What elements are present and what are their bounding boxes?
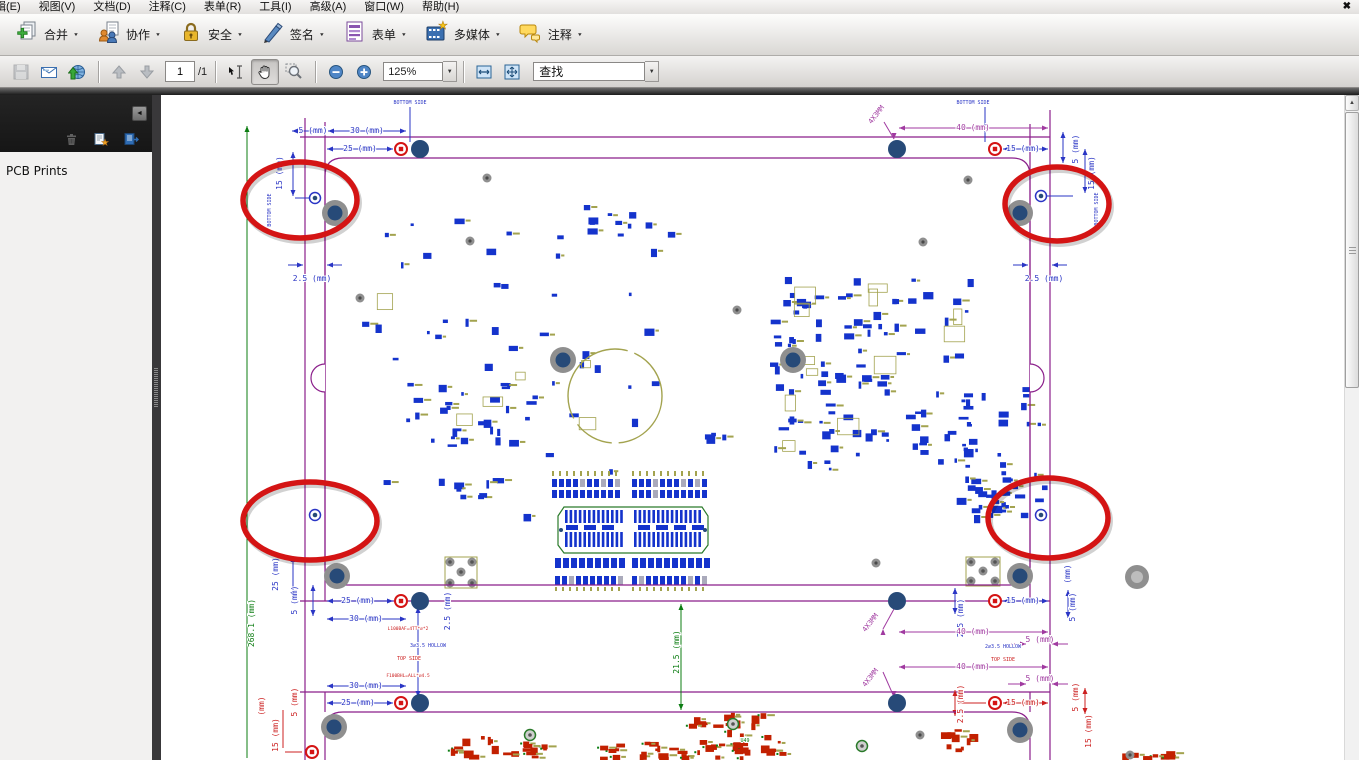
- dimension-label: 5 (mm): [1026, 674, 1055, 683]
- dimension-label: 2⌀3.5 HOLLOW: [985, 644, 1022, 650]
- dimension-label: 40 (mm): [956, 627, 990, 636]
- toolbar-shadow: [0, 88, 1359, 95]
- collaborate-button[interactable]: 协作▼: [90, 17, 168, 52]
- dimension-label: 5 (mm): [290, 688, 299, 717]
- dimension-label: 3⌀3.5 HOLLOW: [410, 643, 447, 649]
- dimension-label: 15 (mm): [271, 718, 280, 752]
- collapse-arrow-icon: ◄: [136, 110, 143, 117]
- dimension-label: 40 (mm): [956, 123, 990, 132]
- up-arrow-icon: [111, 64, 127, 80]
- dimension-label: 25 (mm): [341, 698, 375, 707]
- comment-icon: [519, 20, 543, 49]
- save-button[interactable]: [8, 60, 34, 84]
- find-dropdown-button[interactable]: ▼: [645, 61, 659, 82]
- combine-button[interactable]: 合并▼: [8, 17, 86, 52]
- save-icon: [12, 63, 30, 81]
- dimension-label: 2.5 (mm): [293, 274, 332, 283]
- down-arrow-icon: [139, 64, 155, 80]
- dimension-label: 4X3MM: [867, 104, 886, 126]
- zoom-level-value[interactable]: 125%: [383, 62, 443, 81]
- comment-label: 注释: [548, 26, 572, 43]
- scroll-up-button[interactable]: ▲: [1345, 95, 1359, 111]
- svg-text:★: ★: [101, 138, 109, 148]
- sidebar-splitter[interactable]: [152, 95, 161, 760]
- separator: [315, 61, 317, 83]
- dimension-label: 5 (mm): [1068, 593, 1077, 622]
- dimension-label: 2.5 (mm): [1025, 274, 1064, 283]
- dimension-label: 5 (mm): [299, 126, 328, 135]
- dimension-label: 15 (mm): [1006, 144, 1040, 153]
- dropdown-caret-icon: ▼: [577, 32, 583, 37]
- new-page-star-icon: ★: [93, 132, 109, 147]
- menu-item-4[interactable]: 表单(R): [195, 1, 250, 14]
- menu-items: 辑(E)视图(V)文档(D)注释(C)表单(R)工具(I)高级(A)窗口(W)帮…: [0, 1, 468, 14]
- page-number-input[interactable]: [165, 61, 195, 82]
- separator: [98, 61, 100, 83]
- sidebar-collapse-button[interactable]: ◄: [132, 106, 147, 121]
- combine-label: 合并: [44, 26, 68, 43]
- pcb-drawing: BOTTOM SIDE5 (mm)30 (mm)25 (mm)15 (mm)BO…: [161, 95, 1344, 760]
- mounting-hole: [1007, 563, 1033, 589]
- secure-button[interactable]: 安全▼: [172, 17, 250, 52]
- dimension-label: U49: [740, 738, 749, 744]
- close-icon[interactable]: ✖: [1343, 0, 1351, 13]
- dimension-label: 2.5 (mm): [443, 592, 452, 631]
- scroll-thumb[interactable]: [1345, 112, 1359, 388]
- menu-item-7[interactable]: 窗口(W): [355, 1, 413, 14]
- splitter-grip-icon: [154, 367, 158, 407]
- navigation-sidebar: ◄ ★: [0, 95, 152, 760]
- menu-item-2[interactable]: 文档(D): [84, 1, 139, 14]
- secure-label: 安全: [208, 26, 232, 43]
- previous-page-button[interactable]: [106, 60, 132, 84]
- export-page-icon: [123, 132, 139, 147]
- mounting-hole: [324, 563, 350, 589]
- fit-page-button[interactable]: [499, 60, 525, 84]
- sign-icon: [261, 20, 285, 49]
- find-input[interactable]: 查找: [533, 62, 645, 81]
- forms-button[interactable]: 表单▼: [336, 17, 414, 52]
- dropdown-caret-icon: ▼: [319, 32, 325, 37]
- collaborate-label: 协作: [126, 26, 150, 43]
- email-button[interactable]: [36, 60, 62, 84]
- collaborate-icon: [97, 20, 121, 49]
- menu-item-8[interactable]: 帮助(H): [413, 1, 468, 14]
- dimension-label: BOTTOM SIDE: [1094, 192, 1100, 225]
- sidebar-panel: PCB Prints: [0, 152, 152, 760]
- dimension-label: 30 (mm): [350, 126, 384, 135]
- separator: [215, 61, 217, 83]
- combine-icon: [15, 20, 39, 49]
- dimension-label: BOTTOM SIDE: [956, 100, 989, 106]
- dimension-label: TOP SIDE: [991, 657, 1015, 663]
- dimension-label: 2.5 (mm): [956, 685, 965, 724]
- hand-tool-button[interactable]: [251, 59, 279, 85]
- zoom-in-button[interactable]: [351, 60, 377, 84]
- fit-width-icon: [475, 63, 493, 81]
- document-pane[interactable]: BOTTOM SIDE5 (mm)30 (mm)25 (mm)15 (mm)BO…: [161, 95, 1344, 760]
- secure-icon: [179, 20, 203, 49]
- thumb-grip-icon: [1349, 247, 1356, 254]
- fit-width-button[interactable]: [471, 60, 497, 84]
- mounting-hole: [321, 714, 347, 740]
- dimension-label: 25 (mm): [271, 557, 280, 591]
- dimension-label: (mm): [1063, 564, 1072, 583]
- menu-item-1[interactable]: 视图(V): [30, 1, 85, 14]
- menu-bar: 辑(E)视图(V)文档(D)注释(C)表单(R)工具(I)高级(A)窗口(W)帮…: [0, 0, 1359, 15]
- dimension-label: 40 (mm): [956, 662, 990, 671]
- zoom-dropdown-button[interactable]: ▼: [443, 61, 457, 82]
- menu-item-0[interactable]: 辑(E): [0, 1, 30, 14]
- toolbar-main: 合并▼协作▼安全▼签名▼表单▼★多媒体▼注释▼: [0, 14, 1359, 56]
- multimedia-icon: ★: [425, 20, 449, 49]
- dimension-label: 15 (mm): [1006, 698, 1040, 707]
- multimedia-button[interactable]: ★多媒体▼: [418, 17, 508, 52]
- mounting-hole: [780, 347, 806, 373]
- trash-icon: [64, 132, 79, 147]
- comment-button[interactable]: 注释▼: [512, 17, 590, 52]
- dimension-label: 15 (mm): [1084, 714, 1093, 748]
- svg-text:★: ★: [438, 20, 448, 32]
- vertical-scrollbar[interactable]: ▲: [1344, 95, 1359, 760]
- zoom-out-icon: [328, 64, 344, 80]
- dropdown-caret-icon: ▼: [495, 32, 501, 37]
- dimension-label: 5 (mm): [1071, 683, 1080, 712]
- new-item-button[interactable]: ★: [92, 131, 110, 148]
- upload-button[interactable]: [64, 60, 90, 84]
- dropdown-caret-icon: ▼: [401, 32, 407, 37]
- menu-item-5[interactable]: 工具(I): [250, 1, 300, 14]
- sign-button[interactable]: 签名▼: [254, 17, 332, 52]
- select-tool-button[interactable]: [223, 60, 249, 84]
- menu-item-6[interactable]: 高级(A): [301, 1, 356, 14]
- sidebar-toolbar: ★: [0, 131, 152, 149]
- page-total-label: /1: [198, 66, 207, 78]
- dimension-label: 5 (mm): [1026, 635, 1055, 644]
- marquee-zoom-button[interactable]: [281, 60, 307, 84]
- upload-globe-icon: [68, 63, 86, 81]
- annotation-ellipse: [988, 478, 1108, 558]
- sign-label: 签名: [290, 26, 314, 43]
- forms-label: 表单: [372, 26, 396, 43]
- dimension-label: 21.5 (mm): [672, 630, 681, 673]
- dropdown-caret-icon: ▼: [155, 32, 161, 37]
- zoom-in-icon: [356, 64, 372, 80]
- main-area: ◄ ★: [0, 95, 1359, 760]
- panel-title: PCB Prints: [0, 152, 152, 178]
- email-icon: [40, 63, 58, 81]
- zoom-out-button[interactable]: [323, 60, 349, 84]
- annotation-ellipse: [243, 482, 377, 560]
- dimension-label: 5 (mm): [290, 586, 299, 615]
- dimension-label: 30 (mm): [349, 614, 383, 623]
- dimension-label: 4X3MM: [861, 612, 880, 634]
- dimension-label: 25 (mm): [343, 144, 377, 153]
- dimension-label: 4X3MM: [861, 667, 880, 689]
- mounting-hole: [1007, 717, 1033, 743]
- dimension-label: BOTTOM SIDE: [393, 100, 426, 106]
- export-button[interactable]: [122, 131, 140, 148]
- delete-button[interactable]: [62, 131, 80, 148]
- mounting-hole: [550, 347, 576, 373]
- magnifier-icon: [285, 63, 303, 81]
- dropdown-caret-icon: ▼: [73, 32, 79, 37]
- dimension-label: (mm): [257, 696, 266, 715]
- toolbar-nav: /1: [0, 56, 1359, 88]
- application-window: 辑(E)视图(V)文档(D)注释(C)表单(R)工具(I)高级(A)窗口(W)帮…: [0, 0, 1359, 760]
- annotation-ellipse: [243, 162, 357, 238]
- select-cursor-icon: [227, 63, 245, 81]
- dimension-label: 5 (mm): [1071, 135, 1080, 164]
- dimension-label: F100BHL=ALL*⌀4.5: [386, 673, 430, 679]
- next-page-button[interactable]: [134, 60, 160, 84]
- menu-item-3[interactable]: 注释(C): [140, 1, 195, 14]
- dimension-label: BOTTOM SIDE: [267, 193, 273, 226]
- forms-icon: [343, 20, 367, 49]
- dimension-label: 268.1 (mm): [247, 599, 256, 647]
- dropdown-caret-icon: ▼: [237, 32, 243, 37]
- hand-icon: [256, 63, 274, 81]
- fit-page-icon: [503, 63, 521, 81]
- dimension-label: 30 (mm): [349, 681, 383, 690]
- dimension-label: TOP SIDE: [397, 656, 421, 662]
- dimension-label: 15 (mm): [1006, 596, 1040, 605]
- dimension-label: 25 (mm): [341, 596, 375, 605]
- separator: [463, 61, 465, 83]
- dimension-label: L100BAF=4TT*⌀*2: [388, 626, 429, 632]
- multimedia-label: 多媒体: [454, 26, 490, 43]
- sidebar-header: ◄ ★: [0, 95, 152, 152]
